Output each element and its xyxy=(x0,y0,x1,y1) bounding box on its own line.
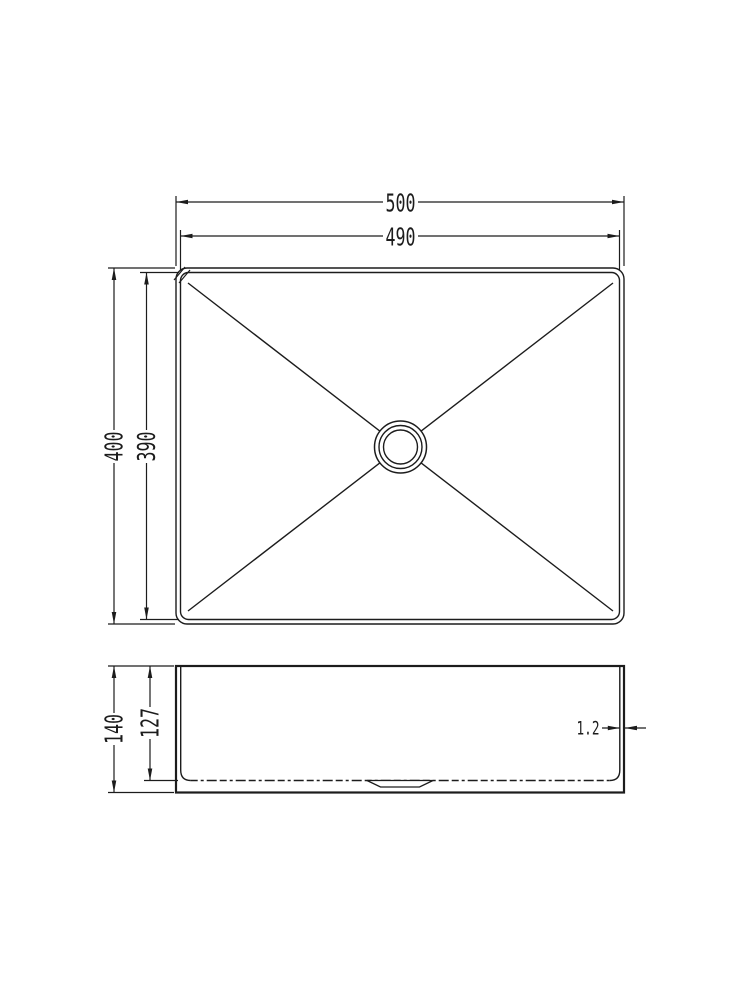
dim-label-inner-height: 390 xyxy=(132,432,161,462)
dim-inner-width: 490 xyxy=(181,223,620,271)
side-view xyxy=(176,666,624,793)
drain-recess xyxy=(367,781,433,788)
dim-label-side-height: 140 xyxy=(100,714,129,744)
dim-label-outer-height: 400 xyxy=(100,432,129,462)
dim-wall-thickness: 1.2 xyxy=(577,718,647,740)
body-outline xyxy=(176,666,624,793)
dim-label-outer-width: 500 xyxy=(386,189,416,218)
dim-label-wall-thickness: 1.2 xyxy=(577,718,600,740)
top-view xyxy=(174,267,624,624)
inner-wall-right xyxy=(610,666,620,781)
dim-side-inner-depth: 127 xyxy=(136,666,179,781)
drawing-page: 500 490 400 390 xyxy=(0,0,750,1000)
sink-technical-drawing: 500 490 400 390 xyxy=(0,0,750,1000)
drain-outer-circle xyxy=(375,421,427,473)
inner-wall-left xyxy=(181,666,191,781)
dim-label-inner-depth: 127 xyxy=(136,708,165,738)
dim-inner-height: 390 xyxy=(132,273,179,620)
dim-label-inner-width: 490 xyxy=(386,223,416,252)
